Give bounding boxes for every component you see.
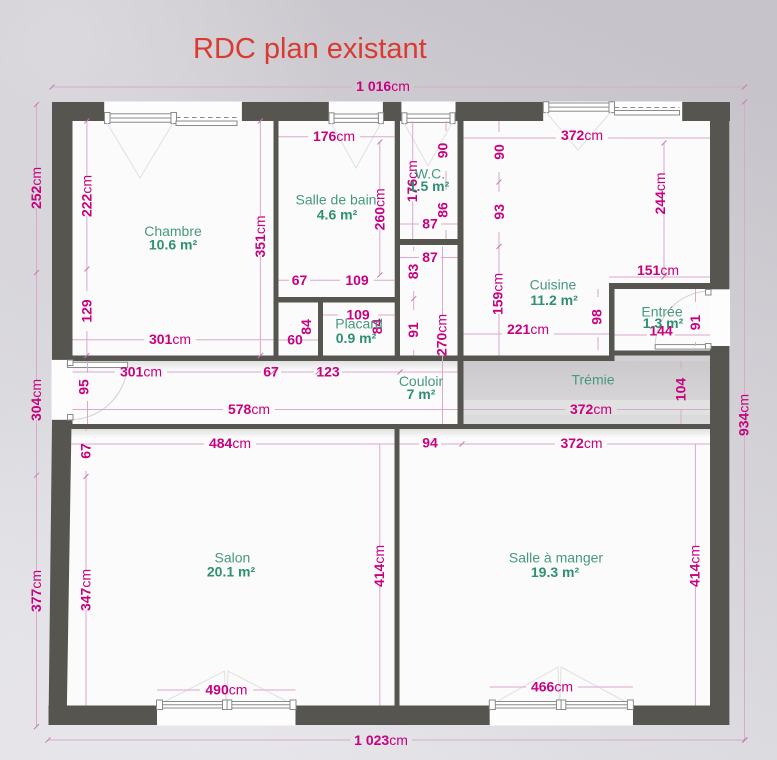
svg-text:301cm: 301cm — [149, 331, 191, 347]
svg-text:252cm: 252cm — [28, 167, 44, 209]
svg-text:372cm: 372cm — [570, 401, 612, 417]
svg-text:95: 95 — [76, 379, 92, 395]
svg-text:7 m²: 7 m² — [407, 386, 436, 402]
svg-text:93: 93 — [491, 204, 507, 220]
svg-text:Trémie: Trémie — [571, 372, 614, 388]
svg-text:304cm: 304cm — [28, 379, 44, 421]
svg-text:351cm: 351cm — [252, 215, 268, 257]
svg-text:104: 104 — [673, 378, 689, 402]
svg-text:490cm: 490cm — [205, 682, 247, 698]
svg-text:90: 90 — [491, 144, 507, 160]
svg-text:67: 67 — [292, 272, 308, 288]
svg-text:934cm: 934cm — [736, 394, 752, 436]
svg-text:Salle de bain: Salle de bain — [296, 192, 377, 208]
svg-text:372cm: 372cm — [561, 127, 603, 143]
svg-text:109: 109 — [345, 272, 369, 288]
svg-text:60: 60 — [287, 332, 303, 348]
svg-text:270cm: 270cm — [434, 314, 450, 356]
svg-text:414cm: 414cm — [371, 545, 387, 587]
svg-text:98: 98 — [589, 309, 605, 325]
svg-text:301cm: 301cm — [120, 364, 162, 380]
svg-text:414cm: 414cm — [686, 545, 702, 587]
svg-text:67: 67 — [77, 443, 93, 459]
svg-text:151cm: 151cm — [637, 262, 679, 278]
svg-text:Cuisine: Cuisine — [530, 277, 577, 293]
svg-text:466cm: 466cm — [531, 679, 573, 695]
svg-text:1 016cm: 1 016cm — [356, 78, 410, 94]
svg-text:221cm: 221cm — [507, 321, 549, 337]
svg-text:RDC plan existant: RDC plan existant — [193, 33, 427, 65]
svg-text:123: 123 — [316, 364, 340, 380]
svg-text:87: 87 — [422, 249, 438, 265]
svg-text:244cm: 244cm — [652, 172, 668, 214]
svg-text:222cm: 222cm — [78, 175, 94, 217]
svg-text:90: 90 — [435, 143, 451, 159]
svg-text:347cm: 347cm — [77, 569, 93, 611]
svg-text:67: 67 — [263, 364, 279, 380]
svg-text:0.9 m²: 0.9 m² — [336, 330, 377, 346]
svg-text:578cm: 578cm — [228, 401, 270, 417]
svg-text:10.6 m²: 10.6 m² — [149, 237, 198, 253]
svg-text:377cm: 377cm — [28, 570, 44, 612]
svg-text:91: 91 — [687, 315, 703, 331]
svg-text:94: 94 — [422, 435, 438, 451]
svg-text:1 023cm: 1 023cm — [354, 732, 408, 748]
svg-text:176cm: 176cm — [313, 128, 355, 144]
svg-text:19.3 m²: 19.3 m² — [531, 564, 580, 580]
svg-text:11.2 m²: 11.2 m² — [530, 292, 578, 308]
svg-text:159cm: 159cm — [490, 273, 506, 315]
svg-text:372cm: 372cm — [560, 435, 602, 451]
svg-text:1.5 m²: 1.5 m² — [409, 178, 450, 194]
svg-text:91: 91 — [405, 322, 421, 338]
svg-text:484cm: 484cm — [209, 435, 251, 451]
svg-text:129: 129 — [78, 299, 94, 323]
svg-text:20.1 m²: 20.1 m² — [207, 564, 256, 580]
svg-text:4.6 m²: 4.6 m² — [317, 207, 358, 223]
svg-text:83: 83 — [405, 264, 421, 280]
svg-text:1.3 m²: 1.3 m² — [643, 315, 684, 331]
svg-text:87: 87 — [422, 216, 438, 232]
